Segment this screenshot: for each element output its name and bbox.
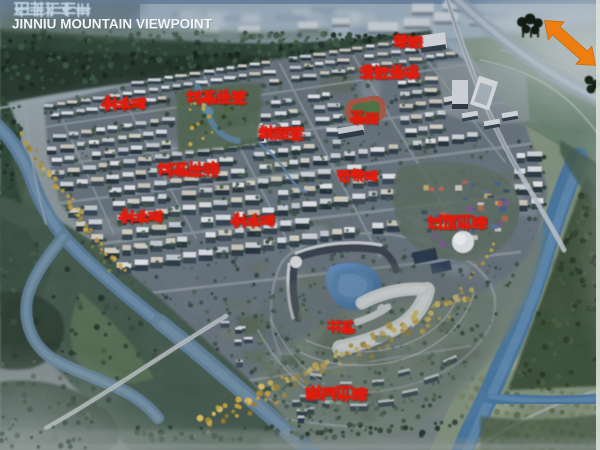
svg-text:JINNIU MOUNTAIN VIEWPOINT: JINNIU MOUNTAIN VIEWPOINT — [12, 17, 213, 32]
